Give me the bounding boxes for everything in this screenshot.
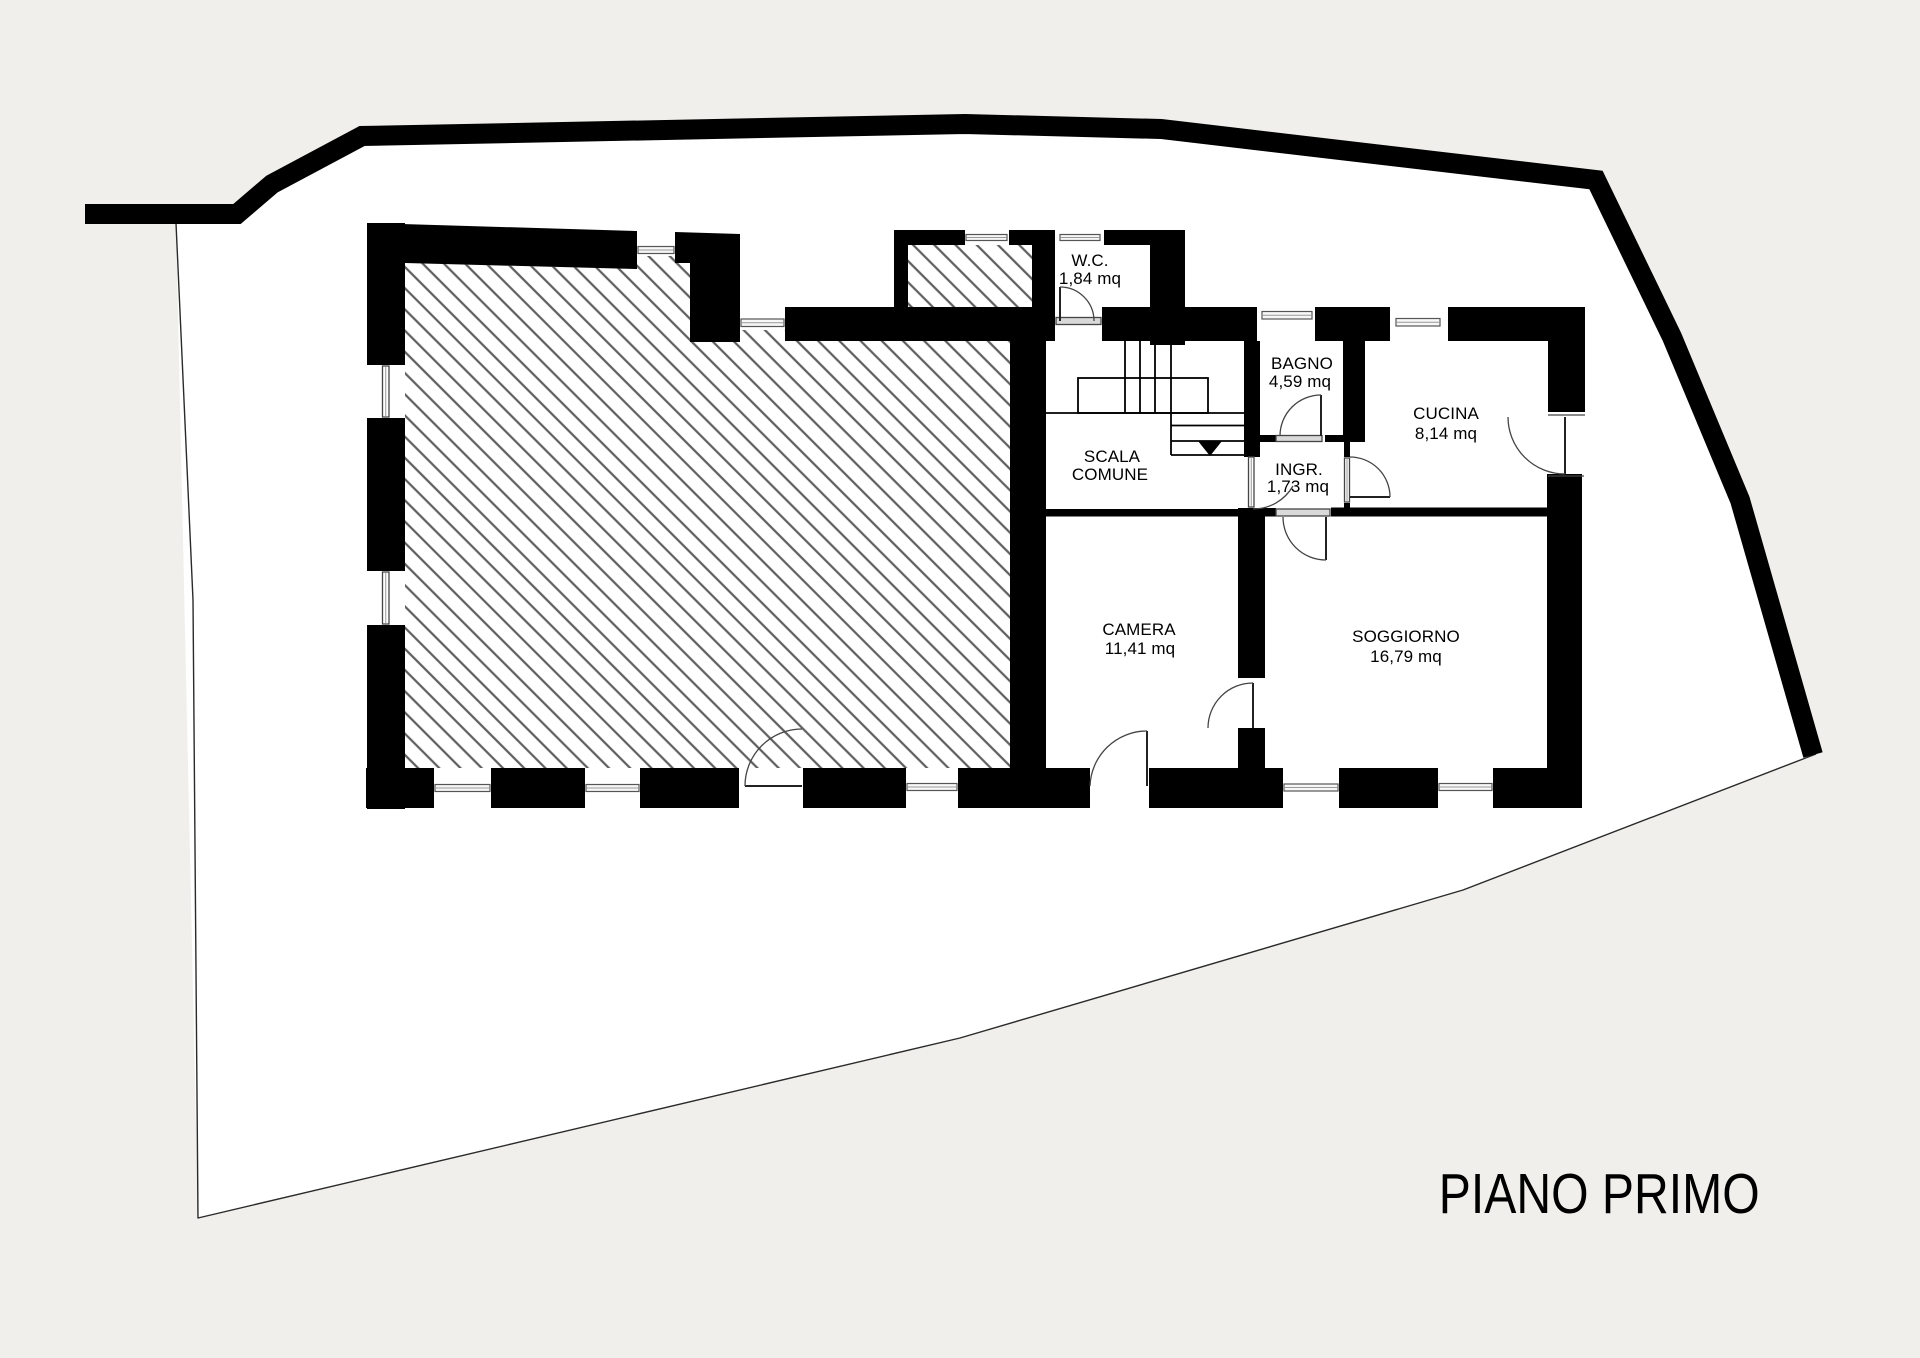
- svg-text:1,84 mq: 1,84 mq: [1059, 269, 1121, 288]
- svg-text:CUCINA: CUCINA: [1413, 404, 1479, 423]
- svg-text:BAGNO: BAGNO: [1271, 354, 1333, 373]
- svg-text:SCALA: SCALA: [1084, 447, 1141, 466]
- svg-text:PIANO PRIMO: PIANO PRIMO: [1439, 1162, 1760, 1226]
- svg-text:4,59 mq: 4,59 mq: [1269, 372, 1331, 391]
- svg-text:16,79 mq: 16,79 mq: [1370, 647, 1442, 666]
- svg-text:11,41 mq: 11,41 mq: [1105, 639, 1175, 658]
- svg-text:8,14 mq: 8,14 mq: [1415, 424, 1477, 443]
- svg-text:W.C.: W.C.: [1071, 251, 1108, 270]
- svg-text:1,73 mq: 1,73 mq: [1267, 477, 1329, 496]
- svg-text:SOGGIORNO: SOGGIORNO: [1352, 627, 1460, 646]
- svg-text:COMUNE: COMUNE: [1072, 465, 1148, 484]
- svg-text:CAMERA: CAMERA: [1102, 620, 1176, 639]
